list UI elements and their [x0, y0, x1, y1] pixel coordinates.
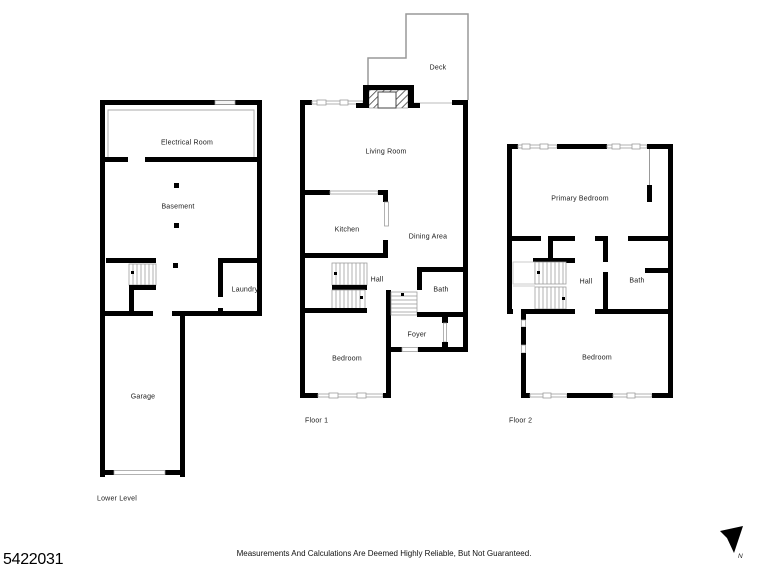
room-label-basement: Basement — [161, 204, 194, 211]
floor-label-floor-1: Floor 1 — [305, 418, 328, 425]
mls-number: 5422031 — [3, 551, 63, 569]
window — [522, 345, 526, 353]
window — [612, 144, 620, 149]
floor-label-lower-level: Lower Level — [97, 496, 137, 503]
compass-north-icon — [720, 526, 743, 553]
window — [329, 393, 338, 398]
support-column — [173, 263, 178, 268]
floor2-stairs — [513, 262, 566, 309]
floorplan-drawing — [0, 0, 768, 576]
room-label-foyer: Foyer — [408, 332, 427, 339]
room-label-garage: Garage — [131, 394, 156, 401]
room-label-primary-bedroom: Primary Bedroom — [551, 196, 608, 203]
window — [627, 393, 635, 398]
garage-door — [114, 471, 165, 475]
closet-door — [444, 323, 447, 342]
room-label-bedroom-f1: Bedroom — [332, 356, 362, 363]
window — [540, 144, 548, 149]
room-label-bath-f2: Bath — [629, 278, 644, 285]
room-label-hall-f2: Hall — [580, 279, 593, 286]
window — [317, 100, 326, 105]
floor-1-plan — [300, 14, 468, 398]
entry-door — [402, 348, 418, 352]
floorplan-page: Electrical Room Basement Laundry Garage … — [0, 0, 768, 576]
window — [522, 320, 526, 327]
room-label-living-room: Living Room — [365, 149, 406, 156]
room-label-kitchen: Kitchen — [335, 227, 360, 234]
basement-stairs — [129, 264, 156, 285]
room-label-bath-f1: Bath — [433, 287, 448, 294]
window — [357, 393, 366, 398]
room-label-hall-f1: Hall — [371, 277, 384, 284]
disclaimer-text: Measurements And Calculations Are Deemed… — [237, 549, 532, 558]
room-label-dining-area: Dining Area — [409, 234, 447, 241]
window — [543, 393, 551, 398]
room-label-laundry: Laundry — [232, 287, 259, 294]
compass-north-label: N — [738, 553, 743, 560]
window — [522, 144, 530, 149]
support-column — [174, 183, 179, 188]
window — [632, 144, 640, 149]
window — [340, 100, 348, 105]
room-label-deck: Deck — [430, 65, 447, 72]
room-label-electrical-room: Electrical Room — [161, 140, 213, 147]
counter — [385, 202, 389, 226]
fireplace — [356, 85, 420, 108]
floor-label-floor-2: Floor 2 — [509, 418, 532, 425]
room-label-bedroom-f2: Bedroom — [582, 355, 612, 362]
hall-stairs — [332, 263, 367, 310]
support-column — [174, 223, 179, 228]
foyer-stairs — [391, 292, 417, 315]
window — [215, 101, 235, 105]
